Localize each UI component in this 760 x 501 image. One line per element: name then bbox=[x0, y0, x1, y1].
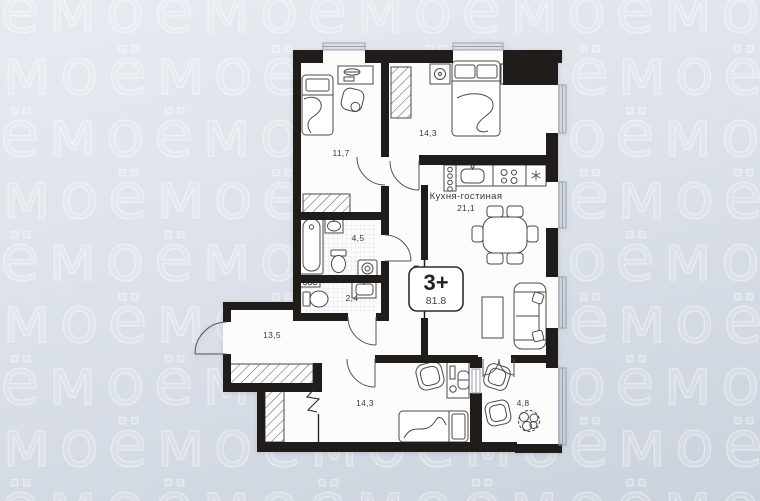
floorplan-screenshot: ёмоёмоёмоёмоёмоёмоёмо ёмоёмоёмоёмоёмоёмо… bbox=[0, 0, 760, 501]
wardrobe-bedroom-top-right bbox=[391, 67, 411, 118]
room-area-bedroom-top-left: 11,7 bbox=[332, 148, 349, 158]
badge-area: 81.8 bbox=[426, 295, 447, 307]
window-right-1 bbox=[559, 85, 566, 133]
badge-rooms: 3+ bbox=[423, 270, 448, 295]
window-bedroom-top-right bbox=[453, 43, 503, 50]
window-right-3 bbox=[559, 277, 566, 328]
single-bed bbox=[302, 75, 333, 135]
loggia-glazing bbox=[559, 368, 566, 445]
bathtub bbox=[300, 216, 323, 274]
wardrobe-bedroom-top-left bbox=[303, 194, 350, 213]
desk bbox=[338, 66, 373, 84]
room-area-kitchen-living: 21,1 bbox=[457, 203, 475, 213]
room-area-bedroom-bottom: 14,3 bbox=[356, 398, 374, 408]
plan-badge: 3+ 81.8 bbox=[409, 267, 463, 311]
window-bedroom-top-left bbox=[323, 43, 365, 50]
wardrobe-bedroom-bottom bbox=[265, 388, 284, 442]
wardrobe-hallway bbox=[229, 364, 313, 384]
loggia-armchair-2 bbox=[484, 399, 512, 427]
desk-bottom bbox=[447, 359, 469, 398]
nightstand-left bbox=[430, 64, 450, 84]
wc-toilet bbox=[303, 291, 328, 307]
floor-plan: 11,7 14,3 Кухня-гостиная 21,1 4,5 2,4 13… bbox=[0, 0, 760, 501]
window-right-2 bbox=[559, 182, 566, 228]
double-bed bbox=[452, 61, 500, 136]
sofa bbox=[514, 283, 546, 349]
coffee-table bbox=[482, 297, 503, 338]
room-area-wc: 2,4 bbox=[346, 293, 359, 303]
room-area-loggia: 4,8 bbox=[517, 398, 530, 408]
toilet bbox=[331, 250, 346, 273]
dining-table bbox=[483, 217, 527, 253]
bed-bottom bbox=[399, 411, 468, 442]
room-area-bedroom-top-right: 14,3 bbox=[419, 128, 437, 138]
washing-machine bbox=[358, 260, 377, 277]
room-area-hallway: 13,5 bbox=[263, 330, 281, 340]
room-name-kitchen-living: Кухня-гостиная bbox=[430, 191, 503, 202]
entrance-door bbox=[195, 322, 227, 354]
room-area-bathroom: 4,5 bbox=[352, 233, 365, 243]
